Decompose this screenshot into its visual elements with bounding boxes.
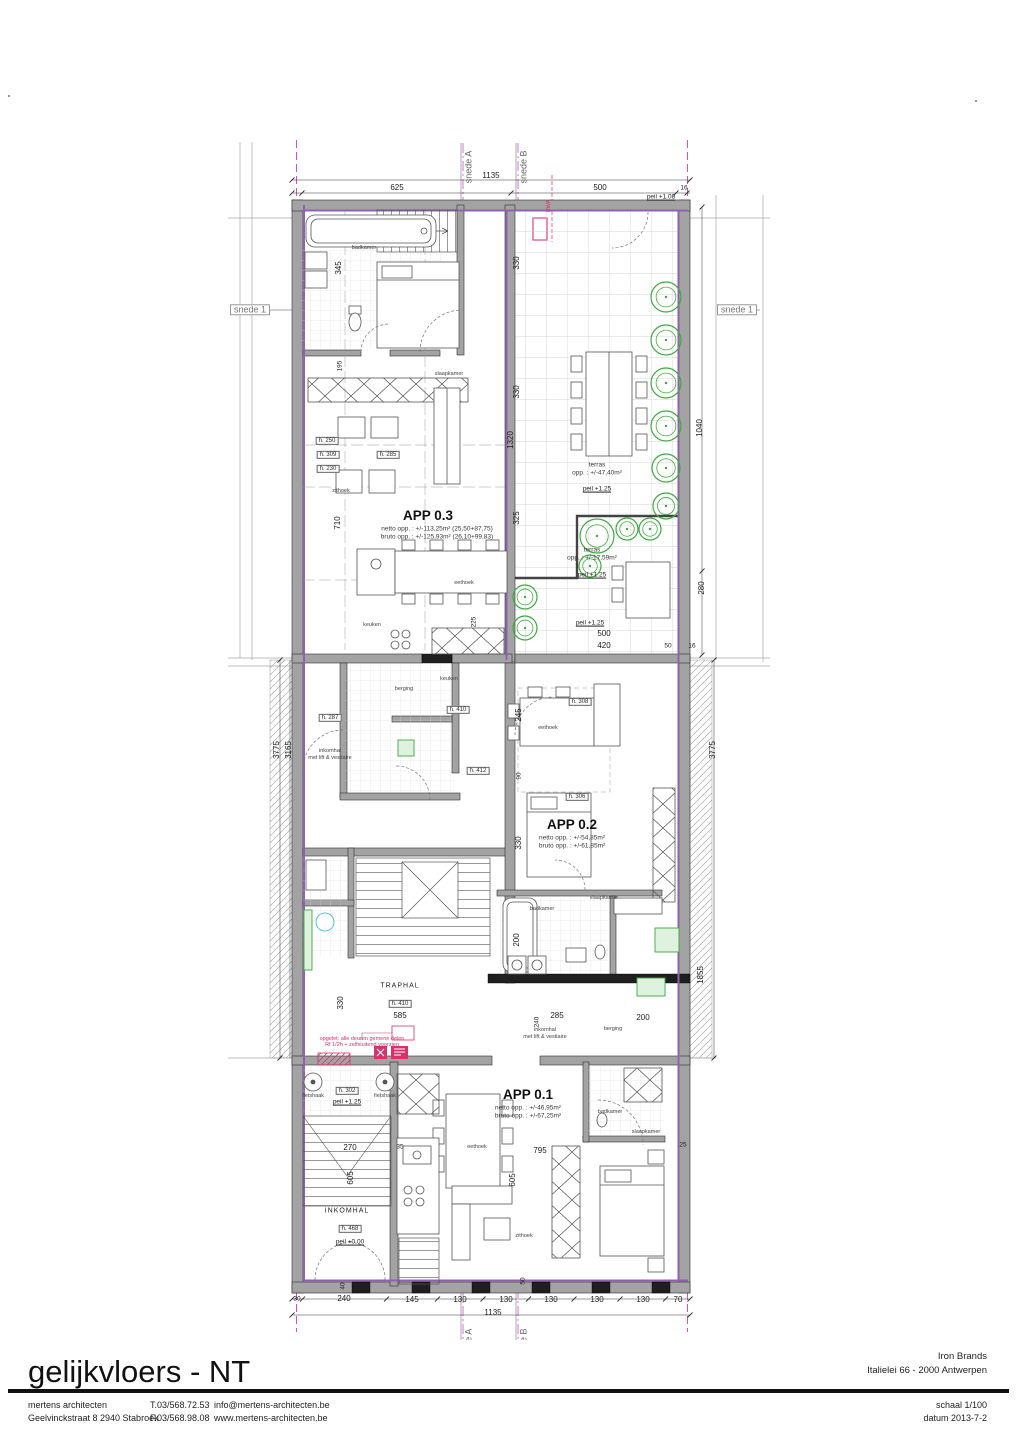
firm-name: mertens architecten xyxy=(28,1399,159,1412)
plan-label: 130 xyxy=(499,1296,512,1304)
firm-phone: T.03/568.72.53 xyxy=(150,1399,210,1412)
plan-label: h. 308 xyxy=(569,698,592,706)
plan-label: 145 xyxy=(405,1296,418,1304)
plan-label: slaapkamer xyxy=(632,1130,660,1136)
drawing-title: gelijkvloers - NT xyxy=(28,1354,250,1390)
plan-label: 1135 xyxy=(484,1309,501,1317)
floor-plan: snede Asnede Bsnede Asnede Bsnede 1snede… xyxy=(0,0,1017,1440)
plan-label: zithoek xyxy=(332,489,349,495)
plan-label: 500 xyxy=(593,184,606,192)
plan-label: h. 285 xyxy=(377,451,400,459)
plan-label: 195 xyxy=(338,361,345,372)
plan-label: 280 xyxy=(698,581,706,594)
plan-label: 200 xyxy=(636,1014,649,1022)
plan-label: bruto opp. : +/-67,25m² xyxy=(495,1114,561,1121)
plan-label: 16 xyxy=(680,186,687,193)
plan-label: h. 309 xyxy=(317,451,340,459)
plan-label: zithoek xyxy=(515,1234,532,1240)
plan-label: 1855 xyxy=(697,966,705,984)
plan-label: met lift & vestiaire xyxy=(523,1035,566,1041)
section-marker-1-right: snede 1 xyxy=(717,304,757,315)
plan-label: 420 xyxy=(597,642,610,650)
plan-label: bruto opp. : +/-61,85m² xyxy=(539,844,605,851)
plan-label: fietshaak xyxy=(302,1094,324,1100)
architectural-drawing-page: snede Asnede Bsnede Asnede Bsnede 1snede… xyxy=(0,0,1017,1440)
rainwater-note: RWA xyxy=(547,200,553,213)
plan-label: h. 287 xyxy=(319,714,342,722)
plan-label: 1040 xyxy=(696,419,704,437)
plan-label: 3165 xyxy=(285,741,293,759)
plan-label: 330 xyxy=(513,256,521,269)
plan-label: peil +0.00 xyxy=(336,1240,364,1247)
plan-label: INKOMHAL xyxy=(325,1207,370,1214)
plan-label: peil +1.25 xyxy=(333,1100,361,1107)
plan-label: 90 xyxy=(517,772,524,779)
plan-label: 1135 xyxy=(482,172,499,180)
plan-label: 585 xyxy=(393,1012,406,1020)
plan-label: 500 xyxy=(597,630,610,638)
plan-label: berging xyxy=(395,687,413,693)
section-marker-b-top: snede B xyxy=(519,150,528,183)
tree-center-dot xyxy=(524,596,526,598)
app-02-title: APP 0.2 xyxy=(547,818,597,832)
plan-label: slaapkamer xyxy=(435,372,463,378)
plan-label: 130 xyxy=(453,1296,466,1304)
plan-label: 50 xyxy=(521,1277,528,1284)
plan-label: met lift & vestiaire xyxy=(308,756,351,762)
tree-center-dot xyxy=(665,382,667,384)
plan-label: 330 xyxy=(337,996,345,1009)
plan-label: fietshaak xyxy=(374,1094,396,1100)
plan-label: 30 xyxy=(293,1297,300,1304)
plan-label: eethoek xyxy=(538,726,558,732)
plan-label: h. 306 xyxy=(566,793,589,801)
plan-label: h. 250 xyxy=(316,437,339,445)
firm-phone-block: T.03/568.72.53 F.03/568.98.08 xyxy=(150,1399,210,1425)
plan-label: 50 xyxy=(664,644,671,651)
plan-label: 3775 xyxy=(709,741,717,759)
scale-date-block: schaal 1/100 datum 2013-7-2 xyxy=(923,1399,987,1425)
plan-label: inkomhal xyxy=(319,749,341,755)
title-block: gelijkvloers - NT Iron Brands Italielei … xyxy=(0,1340,1017,1440)
tree-center-dot xyxy=(665,296,667,298)
plan-label: berging xyxy=(604,1027,622,1033)
plan-label: eethoek xyxy=(454,581,474,587)
plan-label: 330 xyxy=(513,385,521,398)
plan-label: badkamer xyxy=(530,907,554,913)
tree-center-dot xyxy=(626,528,628,530)
tree-center-dot xyxy=(524,627,526,629)
firm-website: www.mertens-architecten.be xyxy=(214,1412,330,1425)
plan-label: peil +1.25 xyxy=(583,487,611,494)
plan-label: 70 xyxy=(674,1296,683,1304)
plan-label: opp. : +/-47,40m² xyxy=(572,471,622,478)
plan-label: terras xyxy=(589,463,606,470)
tree-center-dot xyxy=(665,339,667,341)
tree-center-dot xyxy=(649,528,651,530)
plan-label: terras xyxy=(584,548,601,555)
plan-label: 245 xyxy=(515,708,523,721)
firm-email: info@mertens-architecten.be xyxy=(214,1399,330,1412)
fire-note: Rf 1/2h + zelfsluitend voorzien xyxy=(325,1043,399,1049)
firm-info: mertens architecten Geelvinckstraat 8 29… xyxy=(28,1399,159,1425)
plan-label: badkamer xyxy=(352,246,376,252)
section-marker-a-top: snede A xyxy=(464,151,473,184)
plan-label: 605 xyxy=(509,1173,517,1186)
plan-label: h. 302 xyxy=(336,1087,359,1095)
tree-center-dot xyxy=(589,565,591,567)
plan-label: 35 xyxy=(396,1145,403,1152)
plan-label: 795 xyxy=(533,1147,546,1155)
app-01-title: APP 0.1 xyxy=(503,1088,553,1102)
plan-label: 130 xyxy=(544,1296,557,1304)
scale-label: schaal 1/100 xyxy=(923,1399,987,1412)
firm-web-block: info@mertens-architecten.be www.mertens-… xyxy=(214,1399,330,1425)
plan-label: 345 xyxy=(335,261,343,274)
plan-label: 710 xyxy=(334,516,342,529)
plan-label: 1320 xyxy=(507,431,515,449)
plan-label: 25 xyxy=(679,1143,686,1150)
plan-label: opp. : +/-17,59m² xyxy=(567,556,617,563)
plan-label: peil +1.08 xyxy=(647,195,675,202)
plan-label: netto opp. : +/-46,95m² xyxy=(495,1106,561,1113)
plan-label: h. 412 xyxy=(467,767,490,775)
firm-fax: F.03/568.98.08 xyxy=(150,1412,210,1425)
plan-label: 225 xyxy=(472,617,479,628)
plan-label: inkomhal xyxy=(534,1028,556,1034)
plan-label: TRAPHAL xyxy=(380,982,419,989)
client-address: Italielei 66 - 2000 Antwerpen xyxy=(867,1364,987,1378)
plan-label: h. 468 xyxy=(339,1225,362,1233)
tree-center-dot xyxy=(665,505,667,507)
firm-address: Geelvinckstraat 8 2940 Stabroek xyxy=(28,1412,159,1425)
client-name: Iron Brands xyxy=(867,1350,987,1364)
plan-label: h. 230 xyxy=(317,465,340,473)
title-rule xyxy=(8,1389,1009,1393)
plan-label: slaapkamer xyxy=(590,896,618,902)
plan-label: 625 xyxy=(390,184,403,192)
plan-label: 240 xyxy=(535,1017,542,1028)
tree-center-dot xyxy=(665,425,667,427)
plan-label: peil +1.25 xyxy=(578,573,606,580)
plan-label: netto opp. : +/-113,25m² (25,50+87,75) xyxy=(381,527,493,534)
plan-label: badkamer xyxy=(598,1110,622,1116)
tree-center-dot xyxy=(665,467,667,469)
plan-label: 130 xyxy=(636,1296,649,1304)
section-marker-1-left: snede 1 xyxy=(230,304,270,315)
tree-center-dot xyxy=(596,535,598,537)
plan-label: bruto opp. : +/-125,93m² (26,10+99,83) xyxy=(381,535,493,542)
floor-plan-drawing xyxy=(0,0,1017,1440)
plan-label: 130 xyxy=(590,1296,603,1304)
plan-label: 40 xyxy=(341,1282,348,1289)
plan-label: eethoek xyxy=(467,1145,487,1151)
app-03-title: APP 0.3 xyxy=(403,509,453,523)
plan-label: h. 410 xyxy=(447,706,470,714)
plan-label: 325 xyxy=(513,511,521,524)
client-info: Iron Brands Italielei 66 - 2000 Antwerpe… xyxy=(867,1350,987,1378)
plan-label: 16 xyxy=(688,644,695,651)
plan-label: 270 xyxy=(343,1144,356,1152)
plan-label: 285 xyxy=(550,1012,563,1020)
plan-label: netto opp. : +/-54,85m² xyxy=(539,836,605,843)
plan-label: 240 xyxy=(337,1295,350,1303)
plan-label: keuken xyxy=(363,623,381,629)
plan-label: 605 xyxy=(347,1171,355,1184)
plan-label: 330 xyxy=(515,836,523,849)
plan-label: 200 xyxy=(513,933,521,946)
plan-label: h. 410 xyxy=(389,1000,412,1008)
plan-label: peil +1.25 xyxy=(576,621,604,628)
plan-label: 3775 xyxy=(273,741,281,759)
date-label: datum 2013-7-2 xyxy=(923,1412,987,1425)
plan-label: keuken xyxy=(440,677,458,683)
